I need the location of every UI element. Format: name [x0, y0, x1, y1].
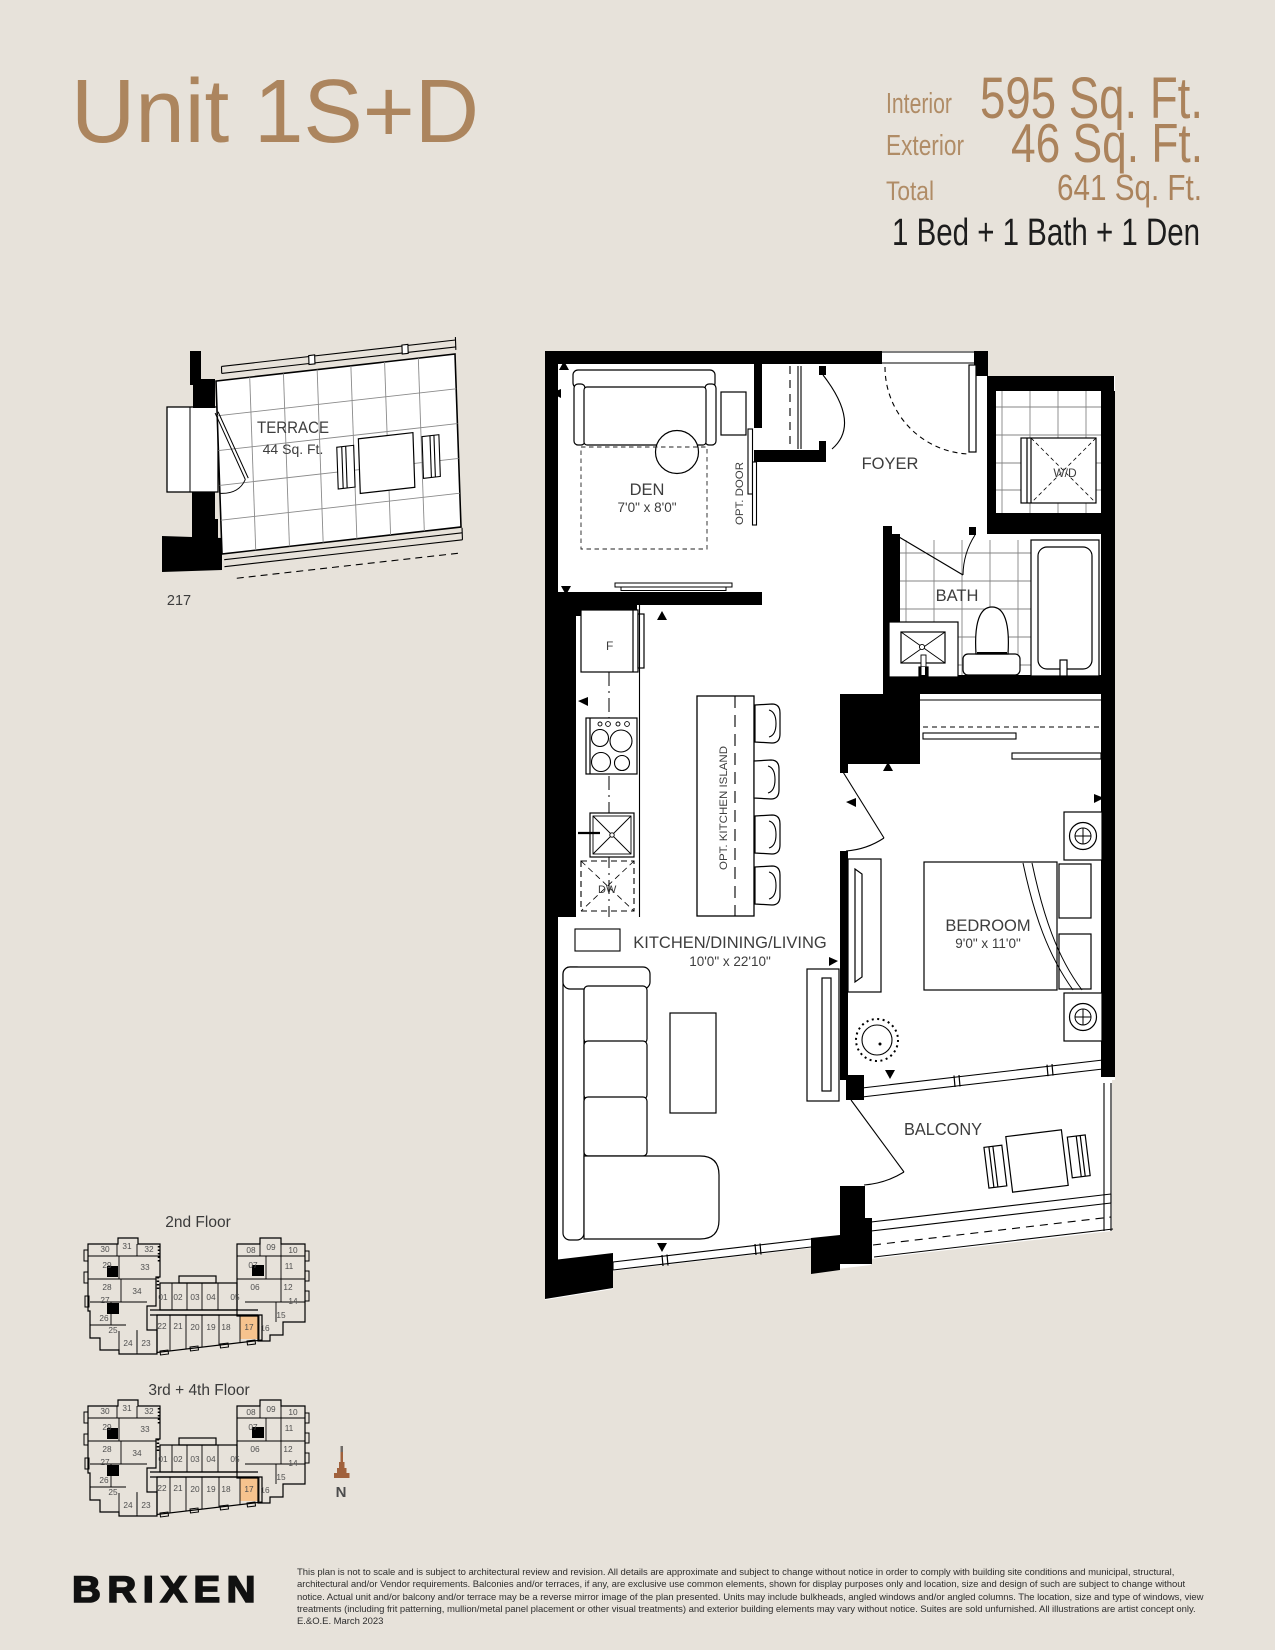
svg-text:28: 28	[102, 1282, 112, 1292]
svg-text:10'0" x 22'10": 10'0" x 22'10"	[689, 954, 771, 969]
svg-text:DEN: DEN	[630, 481, 665, 499]
svg-text:BALCONY: BALCONY	[904, 1119, 982, 1139]
svg-text:N: N	[336, 1484, 347, 1501]
svg-text:BATH: BATH	[936, 587, 979, 605]
svg-text:9'0" x 11'0": 9'0" x 11'0"	[955, 936, 1021, 951]
svg-text:05: 05	[230, 1292, 240, 1302]
svg-text:30: 30	[100, 1244, 110, 1254]
svg-text:17: 17	[244, 1322, 254, 1332]
svg-text:KITCHEN/DINING/LIVING: KITCHEN/DINING/LIVING	[633, 934, 826, 952]
svg-text:OPT. DOOR: OPT. DOOR	[734, 462, 746, 525]
svg-text:BEDROOM: BEDROOM	[945, 917, 1030, 935]
svg-text:DW: DW	[598, 884, 617, 896]
svg-text:3rd + 4th Floor: 3rd + 4th Floor	[148, 1382, 249, 1399]
svg-text:24: 24	[123, 1338, 133, 1348]
svg-text:7'0" x 8'0": 7'0" x 8'0"	[617, 500, 676, 515]
svg-text:08: 08	[246, 1245, 256, 1255]
svg-text:01: 01	[158, 1292, 168, 1302]
svg-text:23: 23	[141, 1338, 151, 1348]
svg-text:02: 02	[173, 1292, 183, 1302]
svg-text:09: 09	[266, 1242, 276, 1252]
svg-text:641 Sq. Ft.: 641 Sq. Ft.	[1057, 167, 1202, 208]
svg-text:10: 10	[288, 1245, 298, 1255]
svg-text:25: 25	[108, 1325, 118, 1335]
svg-text:19: 19	[206, 1322, 216, 1332]
svg-text:07: 07	[248, 1260, 258, 1270]
svg-text:33: 33	[140, 1262, 150, 1272]
svg-text:18: 18	[221, 1322, 231, 1332]
svg-text:14: 14	[288, 1296, 298, 1306]
svg-text:03: 03	[190, 1292, 200, 1302]
svg-text:11: 11	[285, 1261, 294, 1271]
svg-text:20: 20	[190, 1322, 200, 1332]
svg-text:31: 31	[122, 1241, 132, 1251]
svg-text:Total: Total	[886, 176, 934, 206]
svg-text:27: 27	[100, 1295, 110, 1305]
svg-text:BRIXEN: BRIXEN	[72, 1569, 262, 1610]
svg-text:1 Bed + 1 Bath + 1 Den: 1 Bed + 1 Bath + 1 Den	[892, 212, 1200, 254]
svg-text:F: F	[606, 639, 613, 653]
svg-text:W/D: W/D	[1053, 466, 1077, 480]
svg-text:15: 15	[276, 1310, 286, 1320]
svg-text:21: 21	[173, 1321, 183, 1331]
svg-text:32: 32	[144, 1244, 154, 1254]
svg-text:06: 06	[250, 1282, 260, 1292]
svg-text:12: 12	[283, 1282, 293, 1292]
svg-text:FOYER: FOYER	[862, 455, 919, 473]
svg-text:44 Sq. Ft.: 44 Sq. Ft.	[263, 441, 324, 457]
svg-text:Unit 1S+D: Unit 1S+D	[71, 62, 479, 162]
svg-text:2nd Floor: 2nd Floor	[165, 1214, 230, 1231]
svg-text:Interior: Interior	[886, 88, 952, 120]
svg-text:217: 217	[167, 593, 191, 609]
svg-text:Exterior: Exterior	[886, 130, 964, 162]
svg-text:04: 04	[206, 1292, 216, 1302]
svg-text:26: 26	[99, 1313, 109, 1323]
svg-text:TERRACE: TERRACE	[257, 419, 329, 437]
svg-text:46 Sq. Ft.: 46 Sq. Ft.	[1011, 112, 1203, 174]
svg-text:OPT. KITCHEN ISLAND: OPT. KITCHEN ISLAND	[718, 746, 730, 870]
svg-text:29: 29	[102, 1260, 112, 1270]
svg-text:34: 34	[132, 1286, 142, 1296]
svg-text:16: 16	[260, 1323, 270, 1333]
svg-text:22: 22	[157, 1321, 167, 1331]
